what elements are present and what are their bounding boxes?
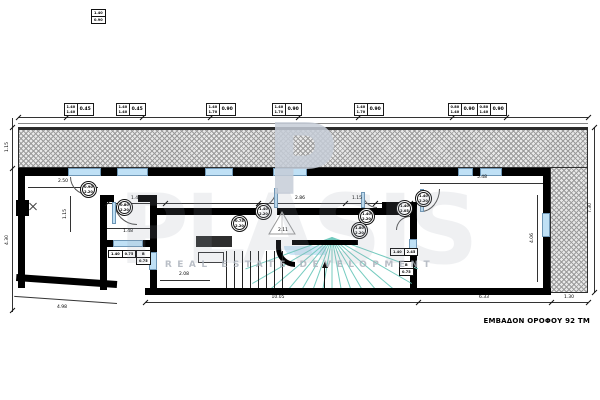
wall-center-top (157, 208, 258, 215)
tag-sill: 0.45 (130, 104, 145, 115)
tag-sill: 0.90 (220, 104, 235, 115)
door-tag-height: 2.20 (235, 224, 244, 228)
dim-label: 2.08 (179, 273, 189, 278)
floor-area-title: ΕΜΒΑΔΟΝ ΟΡΟΦΟΥ 92 ΤΜ (483, 317, 590, 325)
dim-label: 7.30 (589, 203, 594, 213)
stair-straight-treads (226, 251, 286, 291)
dimension-line-top (18, 117, 588, 118)
wall-bottom (145, 288, 551, 295)
window (117, 168, 148, 176)
dim-label: 1.15 (64, 209, 69, 219)
dim-label: 5.48 (477, 176, 487, 181)
door-tag: 1.402.20 (255, 203, 272, 220)
dim-label: 1.15 (352, 197, 362, 202)
tag-sill: 0.45 (78, 104, 93, 115)
floor-plan-canvas: P PLASIS REAL ESTATE DEVELOPMENT 1.40 0.… (0, 0, 600, 400)
counter-fixture (196, 236, 232, 247)
door-tag-height: 2.20 (259, 212, 268, 216)
dim-label: 2.50 (58, 180, 68, 185)
detail-tag: B 0.75 (399, 261, 414, 276)
door-leaf (274, 188, 278, 208)
door-tag: 0.902.20 (80, 181, 97, 198)
dim-line (420, 183, 543, 184)
dim-label: 1.30 (564, 296, 574, 301)
stair-curved-wall (292, 240, 358, 245)
detail-tag-value: 0.75 (122, 251, 136, 257)
detail-tag: 1.40 0.90 (91, 9, 106, 24)
dim-line (70, 196, 71, 232)
window-tag: 1.401.40 0.45 (116, 103, 146, 116)
dimension-line-left (12, 118, 13, 312)
dim-label: 1.47 (131, 197, 141, 202)
tag-height: 1.40 (119, 110, 128, 114)
balcony-hatch-top (18, 127, 588, 168)
detail-tag-value: 0.75 (137, 257, 150, 264)
wall-left (18, 168, 25, 288)
tag-sill: 0.90 (462, 104, 477, 115)
door-tag: 0.752.20 (231, 215, 248, 232)
tag-height: 1.70 (209, 110, 218, 114)
dim-label: 1.15 (6, 142, 11, 152)
detail-tag: B 0.75 (136, 250, 151, 265)
tag-height: 1.40 (480, 110, 489, 114)
dim-label: 10.05 (272, 296, 285, 301)
door-tag-height: 2.05 (400, 209, 409, 213)
dim-label: 1.48 (123, 230, 133, 235)
detail-tag-value: 2.45 (404, 249, 418, 255)
window-tag: 0.801.40 0.90 (477, 103, 507, 116)
dimension-line-left-wing (14, 296, 117, 304)
dim-label: 2.11 (278, 229, 288, 234)
door-tag-height: 2.20 (419, 199, 428, 203)
wall-wc-top (100, 195, 114, 202)
dimension-line-right (594, 127, 595, 293)
window-tag: 0.801.40 0.90 (448, 103, 478, 116)
tag-sill: 0.90 (491, 104, 506, 115)
dim-label: 6.33 (479, 296, 489, 301)
dimension-line-bottom-center (145, 302, 418, 303)
dim-tick (592, 290, 598, 296)
door-tag-height: 2.20 (362, 217, 371, 221)
door-tag: 0.802.20 (116, 199, 133, 216)
window (205, 168, 233, 176)
detail-tag-value: 1.40 (109, 251, 122, 257)
window (542, 213, 550, 237)
tag-height: 1.70 (275, 110, 284, 114)
balcony-hatch-right (550, 167, 588, 293)
dim-tick (10, 308, 16, 314)
tag-sill: 0.90 (286, 104, 301, 115)
door-tag-height: 2.20 (120, 208, 129, 212)
tag-height: 1.40 (451, 110, 460, 114)
dim-label: 4.30 (6, 235, 11, 245)
dim-label: 4.06 (531, 233, 536, 243)
window (113, 240, 143, 247)
dim-line (537, 195, 538, 282)
detail-tag: 1.40 0.75 (108, 250, 136, 258)
window (68, 168, 101, 176)
stair-direction-arrow-head (322, 261, 328, 268)
detail-tag-value: 0.75 (400, 268, 413, 275)
door-tag-height: 2.20 (84, 190, 93, 194)
dim-label: 2.86 (295, 197, 305, 202)
dim-tick (586, 115, 592, 121)
window-tag: 1.401.70 0.90 (206, 103, 236, 116)
dim-tick (586, 300, 592, 306)
pilaster (16, 200, 29, 216)
window-tag: 1.401.40 0.45 (64, 103, 94, 116)
tag-height: 1.40 (67, 110, 76, 114)
window-tag: 1.401.70 0.90 (354, 103, 384, 116)
window (273, 168, 307, 176)
dim-line (160, 280, 210, 281)
detail-tag: 1.40 2.45 (390, 248, 418, 256)
table-fixture (198, 252, 224, 263)
window (458, 168, 473, 176)
door-tag-height: 2.20 (355, 231, 364, 235)
dimension-line-bottom-right (418, 302, 588, 303)
door-tag: 1.402.05 (396, 200, 413, 217)
window-tag: 1.401.70 0.90 (272, 103, 302, 116)
detail-tag-value: 1.40 (391, 249, 404, 255)
door-tag: 1.402.20 (415, 190, 432, 207)
dim-label: 4.98 (57, 306, 67, 311)
door-tag: 1.802.20 (351, 222, 368, 239)
detail-tag-value: 0.90 (92, 16, 105, 23)
tag-height: 1.70 (357, 110, 366, 114)
staircase (222, 215, 418, 291)
slab-edge-line (18, 123, 588, 124)
tag-sill: 0.90 (368, 104, 383, 115)
